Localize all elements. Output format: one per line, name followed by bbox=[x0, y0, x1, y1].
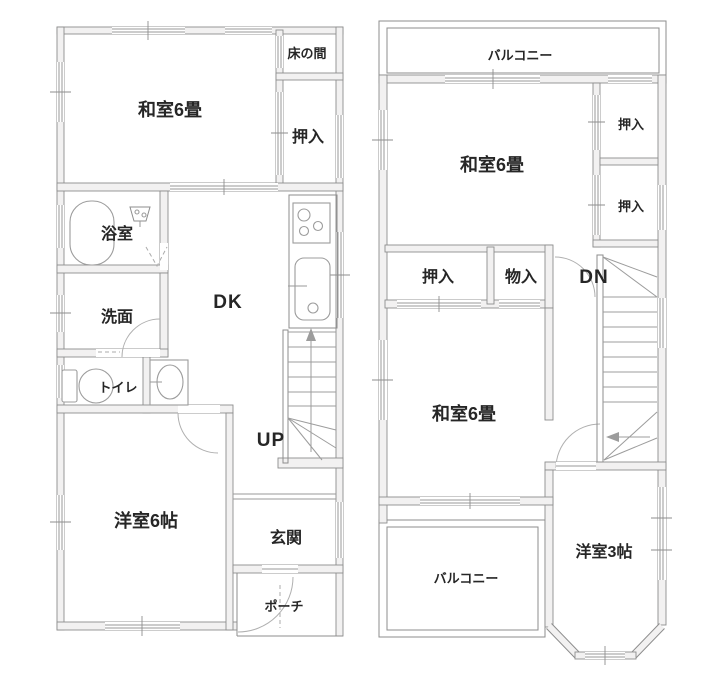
room-label-washitsu-1f: 和室6畳 bbox=[138, 99, 202, 120]
room-label-washitsu-2f-south: 和室6畳 bbox=[432, 403, 496, 424]
room-label-dk: DK bbox=[213, 292, 242, 313]
washbasin-icon bbox=[150, 360, 188, 405]
room-label-balcony-south: バルコニー bbox=[434, 571, 499, 586]
entrance-step bbox=[233, 494, 336, 499]
room-label-tokonoma: 床の間 bbox=[287, 46, 326, 61]
kitchen-sink-icon bbox=[288, 258, 330, 320]
room-label-oshiire-2f-upper: 押入 bbox=[618, 117, 644, 132]
room-label-western-1f: 洋室6帖 bbox=[114, 510, 178, 531]
room-label-oshiire-1f: 押入 bbox=[292, 127, 324, 146]
floor2-plan: バルコニー 和室6畳 押入 押入 押入 物入 DN 和室6畳 バルコニー 洋室3… bbox=[372, 21, 672, 665]
floor-plan-drawing: 和室6畳 床の間 押入 浴室 洗面 トイレ DK UP 洋室6帖 玄関 ポーチ bbox=[0, 0, 715, 692]
shower-icon bbox=[130, 207, 150, 227]
floor1-openings bbox=[96, 36, 298, 632]
room-label-porch: ポーチ bbox=[264, 599, 303, 614]
stairs-label-up: UP bbox=[257, 430, 285, 451]
room-label-oshiire-2f-lower: 押入 bbox=[618, 199, 644, 214]
floor-plan-page: 和室6畳 床の間 押入 浴室 洗面 トイレ DK UP 洋室6帖 玄関 ポーチ bbox=[0, 0, 715, 692]
room-label-western-2f: 洋室3帖 bbox=[576, 542, 633, 561]
stairs-label-dn: DN bbox=[579, 267, 608, 288]
stairs-up bbox=[283, 328, 336, 463]
room-label-washroom: 洗面 bbox=[101, 307, 133, 326]
room-label-washitsu-2f-north: 和室6畳 bbox=[460, 154, 524, 175]
room-label-storage: 物入 bbox=[505, 267, 537, 286]
room-label-entrance: 玄関 bbox=[270, 528, 302, 547]
room-label-bathroom: 浴室 bbox=[101, 224, 133, 243]
stove-icon bbox=[293, 203, 330, 243]
room-label-balcony-north: バルコニー bbox=[488, 48, 553, 63]
room-label-toilet: トイレ bbox=[98, 380, 137, 395]
floor1-plan: 和室6畳 床の間 押入 浴室 洗面 トイレ DK UP 洋室6帖 玄関 ポーチ bbox=[50, 21, 350, 636]
room-label-oshiire-2f-center: 押入 bbox=[422, 267, 454, 286]
